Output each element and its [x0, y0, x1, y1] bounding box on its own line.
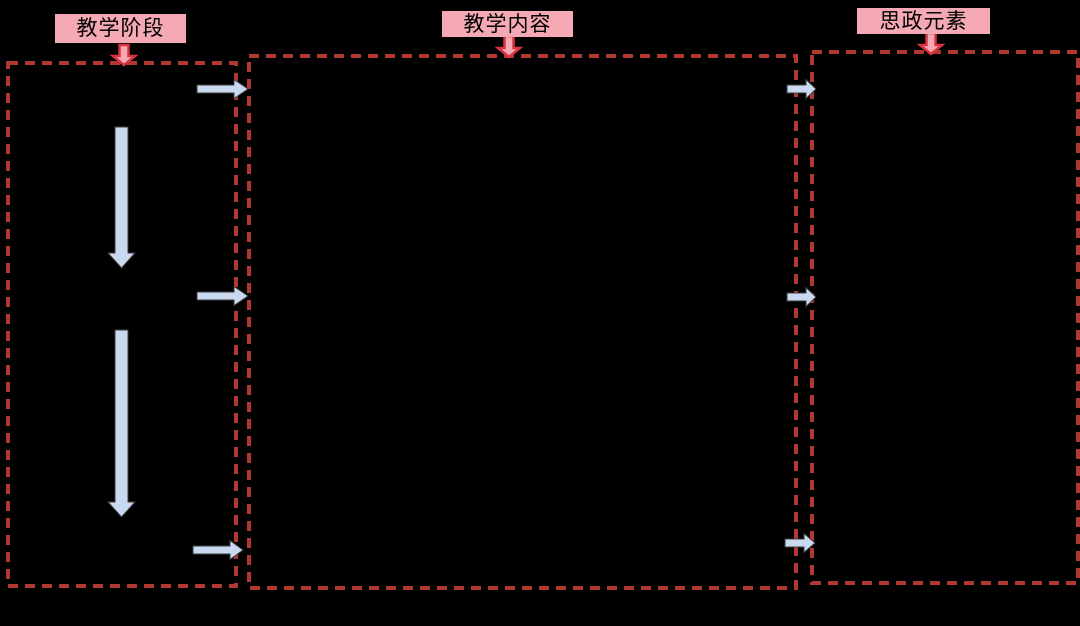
diagram-canvas: 教学阶段 教学内容 思政元素	[0, 0, 1080, 626]
blue-down-arrow-icon	[108, 127, 135, 268]
red-down-arrow-icon	[498, 36, 520, 57]
teaching-stage-label: 教学阶段	[55, 14, 186, 43]
civic-elements-box	[812, 52, 1078, 583]
civic-elements-label: 思政元素	[857, 8, 990, 34]
blue-right-arrow-icon	[787, 288, 816, 307]
teaching-content-label: 教学内容	[442, 11, 573, 37]
teaching-content-box	[249, 56, 796, 588]
blue-down-arrow-icon	[108, 330, 135, 517]
blue-right-arrow-icon	[197, 80, 248, 99]
blue-right-arrow-icon	[197, 287, 248, 306]
diagram-drawing	[0, 0, 1080, 626]
